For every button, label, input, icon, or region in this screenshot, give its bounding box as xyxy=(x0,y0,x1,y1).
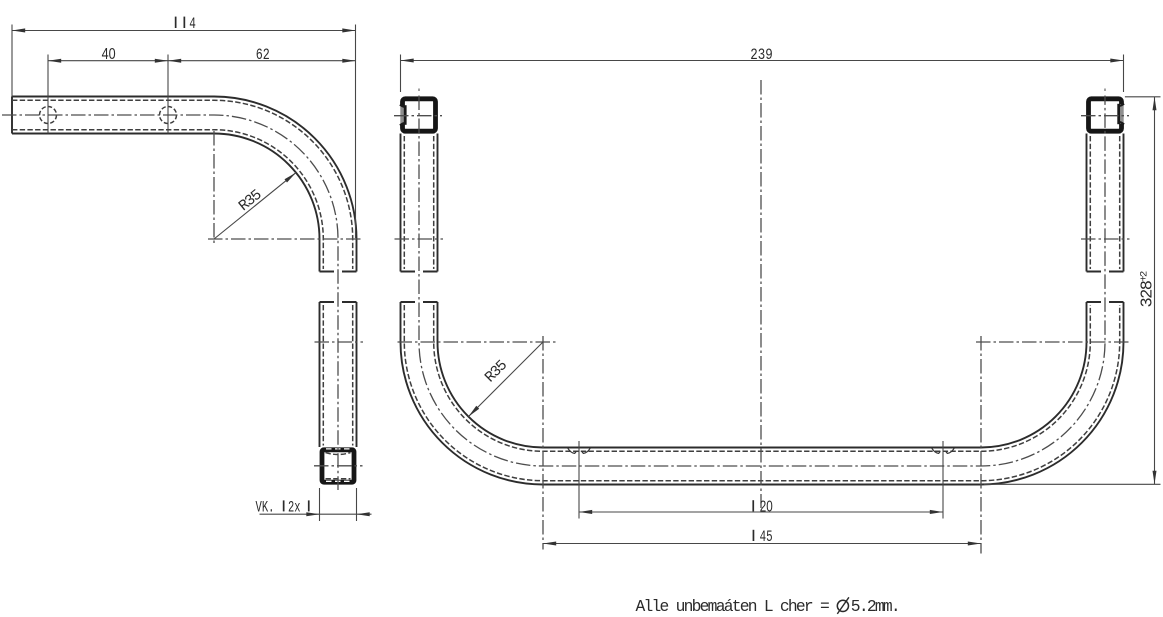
svg-text:2x: 2x xyxy=(288,498,301,516)
svg-text:40: 40 xyxy=(102,46,116,63)
svg-text:45: 45 xyxy=(760,528,773,546)
svg-text:5.2mm.: 5.2mm. xyxy=(851,597,899,616)
svg-text:Alle unbemaáten L cher =: Alle unbemaáten L cher = xyxy=(636,597,829,616)
svg-text:4: 4 xyxy=(189,15,196,33)
svg-text:239: 239 xyxy=(750,46,773,64)
svg-text:VK.: VK. xyxy=(256,498,275,516)
svg-text:62: 62 xyxy=(256,46,270,64)
svg-text:20: 20 xyxy=(760,498,773,515)
